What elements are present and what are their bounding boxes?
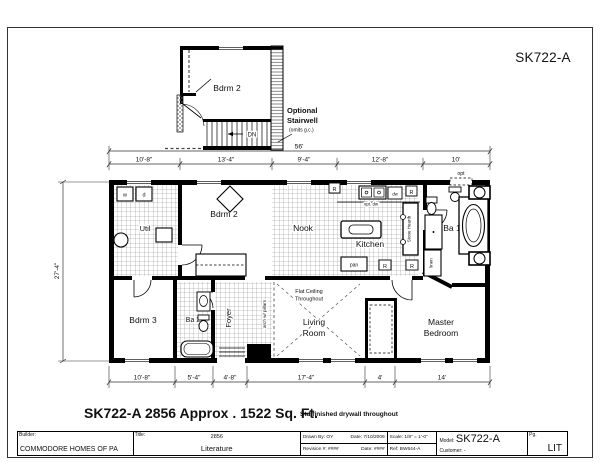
- dryer-label: d: [142, 193, 145, 199]
- dim-bottom-2: 5'-4": [188, 375, 202, 382]
- model-label: Model:: [439, 438, 454, 444]
- stone-hearth-label: Stone Hearth: [407, 215, 412, 242]
- annotation-line1: Optional: [287, 106, 317, 115]
- toilet: [426, 197, 437, 215]
- bdrm2-label: Bdrm 2: [210, 209, 238, 219]
- shower: [425, 215, 442, 249]
- pg-value: LIT: [548, 443, 562, 454]
- entry-stoop: [247, 344, 271, 360]
- util-label: Util: [140, 224, 151, 233]
- flat-ceiling-line2: Throughout: [295, 297, 324, 303]
- builder-value: COMMODORE HOMES OF PA: [20, 446, 118, 453]
- opt-dw-label: opt. dw: [364, 202, 379, 207]
- revision: Revision #: ####: [303, 447, 339, 452]
- garden-tub: [459, 186, 490, 265]
- pantry: pan: [341, 257, 367, 271]
- toilet: [198, 315, 209, 332]
- ba1-label: Ba 1: [443, 223, 461, 233]
- title-number: 2856: [134, 434, 300, 440]
- furnace: [156, 228, 172, 242]
- drywall-note: Std finished drywall throughout: [300, 411, 398, 418]
- dim-bottom-3: 4'-8": [224, 375, 238, 382]
- builder-label: Builder:: [19, 432, 36, 438]
- dw-label: dw: [392, 192, 398, 197]
- arch-label: arch w/ pillars: [262, 299, 267, 328]
- stone-hearth: Stone Hearth: [401, 203, 419, 255]
- model-cell: Model: SK722-A Customer: -: [436, 432, 527, 455]
- dim-bottom-5: 4': [378, 375, 383, 382]
- drawn-revision-cell: Drawn By: OY Date: 7/10/2009 Revision #:…: [300, 432, 387, 455]
- washer-label: w: [122, 193, 127, 199]
- optional-stairwell-annotation: Optional Stairwell (omits g.c.): [278, 106, 318, 142]
- flat-ceiling-line1: Flat Ceiling: [295, 289, 323, 295]
- register-label: R: [383, 264, 387, 270]
- optional-window: opt: [450, 171, 472, 185]
- inset-bdrm2-label: Bdrm 2: [213, 83, 241, 93]
- dim-bottom-1: 10'-8": [134, 375, 151, 382]
- inset-plan: DN Bdrm 2 Optional Stairwell (omits g.c.…: [165, 46, 318, 150]
- ref-value: Ref: BW644-A: [390, 447, 421, 452]
- builder-cell: Builder: COMMODORE HOMES OF PA: [18, 432, 133, 455]
- revision-date: Date: ####: [361, 447, 384, 452]
- stairwell-wall-hatched: [271, 46, 283, 150]
- linen-closet: linen: [424, 250, 441, 276]
- dim-top-2: 13'-4": [218, 157, 235, 164]
- dim-top-5: 10': [452, 157, 460, 164]
- opt-window-label: opt: [457, 171, 465, 177]
- register-label: R: [410, 264, 414, 270]
- kitchen-sink: [359, 186, 386, 199]
- scale-ref-cell: Scale: 1/8" = 1'-0" Ref: BW644-A: [387, 432, 437, 455]
- pg-label: Pg.: [529, 432, 537, 438]
- stair-top-wall: [203, 119, 271, 122]
- title-value: Literature: [134, 444, 300, 453]
- title-block: Builder: COMMODORE HOMES OF PA Title: 28…: [17, 431, 568, 456]
- dim-bottom-4: 17'-4": [298, 375, 315, 382]
- left-dimension: 27'-4": [54, 180, 109, 363]
- customer-value: Customer: -: [439, 448, 465, 454]
- scale-value: Scale: 1/8" = 1'-0": [390, 435, 428, 440]
- dim-top-3: 9'-4": [298, 157, 312, 164]
- register-label: R: [410, 190, 414, 196]
- dim-bottom-6: 14': [438, 375, 446, 382]
- kitchen-label: Kitchen: [356, 239, 385, 249]
- model-value: SK722-A: [456, 433, 500, 445]
- register-label: R: [333, 187, 337, 193]
- stair-bottom-wall: [203, 146, 271, 150]
- linen-label: linen: [429, 258, 434, 268]
- dim-height: 27'-4": [54, 262, 61, 279]
- nook-label: Nook: [293, 223, 314, 233]
- bdrm2-closet: [196, 254, 246, 276]
- pan-label: pan: [350, 263, 359, 269]
- master-bedroom-label-2: Bedroom: [424, 328, 459, 338]
- annotation-line2: Stairwell: [287, 116, 318, 125]
- foyer-label: Foyer: [224, 308, 233, 328]
- master-bedroom-label-1: Master: [428, 317, 454, 327]
- water-heater: [114, 233, 128, 247]
- drawing-sheet: SK722-A: [0, 0, 600, 464]
- main-plan: opt: [109, 171, 490, 363]
- bdrm3-label: Bdrm 3: [129, 315, 157, 325]
- annotation-line3: (omits g.c.): [289, 128, 314, 134]
- dim-overall: 56': [295, 144, 304, 151]
- drawn-date: Date: 7/10/2009: [351, 435, 385, 440]
- title-cell: Title: 2856 Literature: [133, 432, 300, 455]
- drawn-by: Drawn By: OY: [303, 435, 333, 440]
- plan-caption: SK722-A 2856 Approx . 1522 Sq. Ft.: [84, 405, 318, 421]
- dim-top-4: 12'-8": [372, 157, 389, 164]
- inset-wall-hatched: [177, 95, 183, 132]
- top-dimensions: 56' 10'-8" 13'-4" 9'-4" 12'-8" 10': [107, 144, 492, 171]
- dim-top-1: 10'-8": [136, 157, 153, 164]
- stair-dn-label: DN: [248, 133, 257, 139]
- floor-plan-drawing: DN Bdrm 2 Optional Stairwell (omits g.c.…: [0, 0, 600, 464]
- bottom-dimensions: 10'-8" 5'-4" 4'-8" 17'-4" 4' 14': [107, 366, 492, 388]
- living-room-label-2: Room: [303, 328, 326, 338]
- page-cell: Pg. LIT: [527, 432, 567, 455]
- living-room-label-1: Living: [303, 317, 325, 327]
- vanity: [197, 292, 210, 311]
- window: [219, 46, 243, 51]
